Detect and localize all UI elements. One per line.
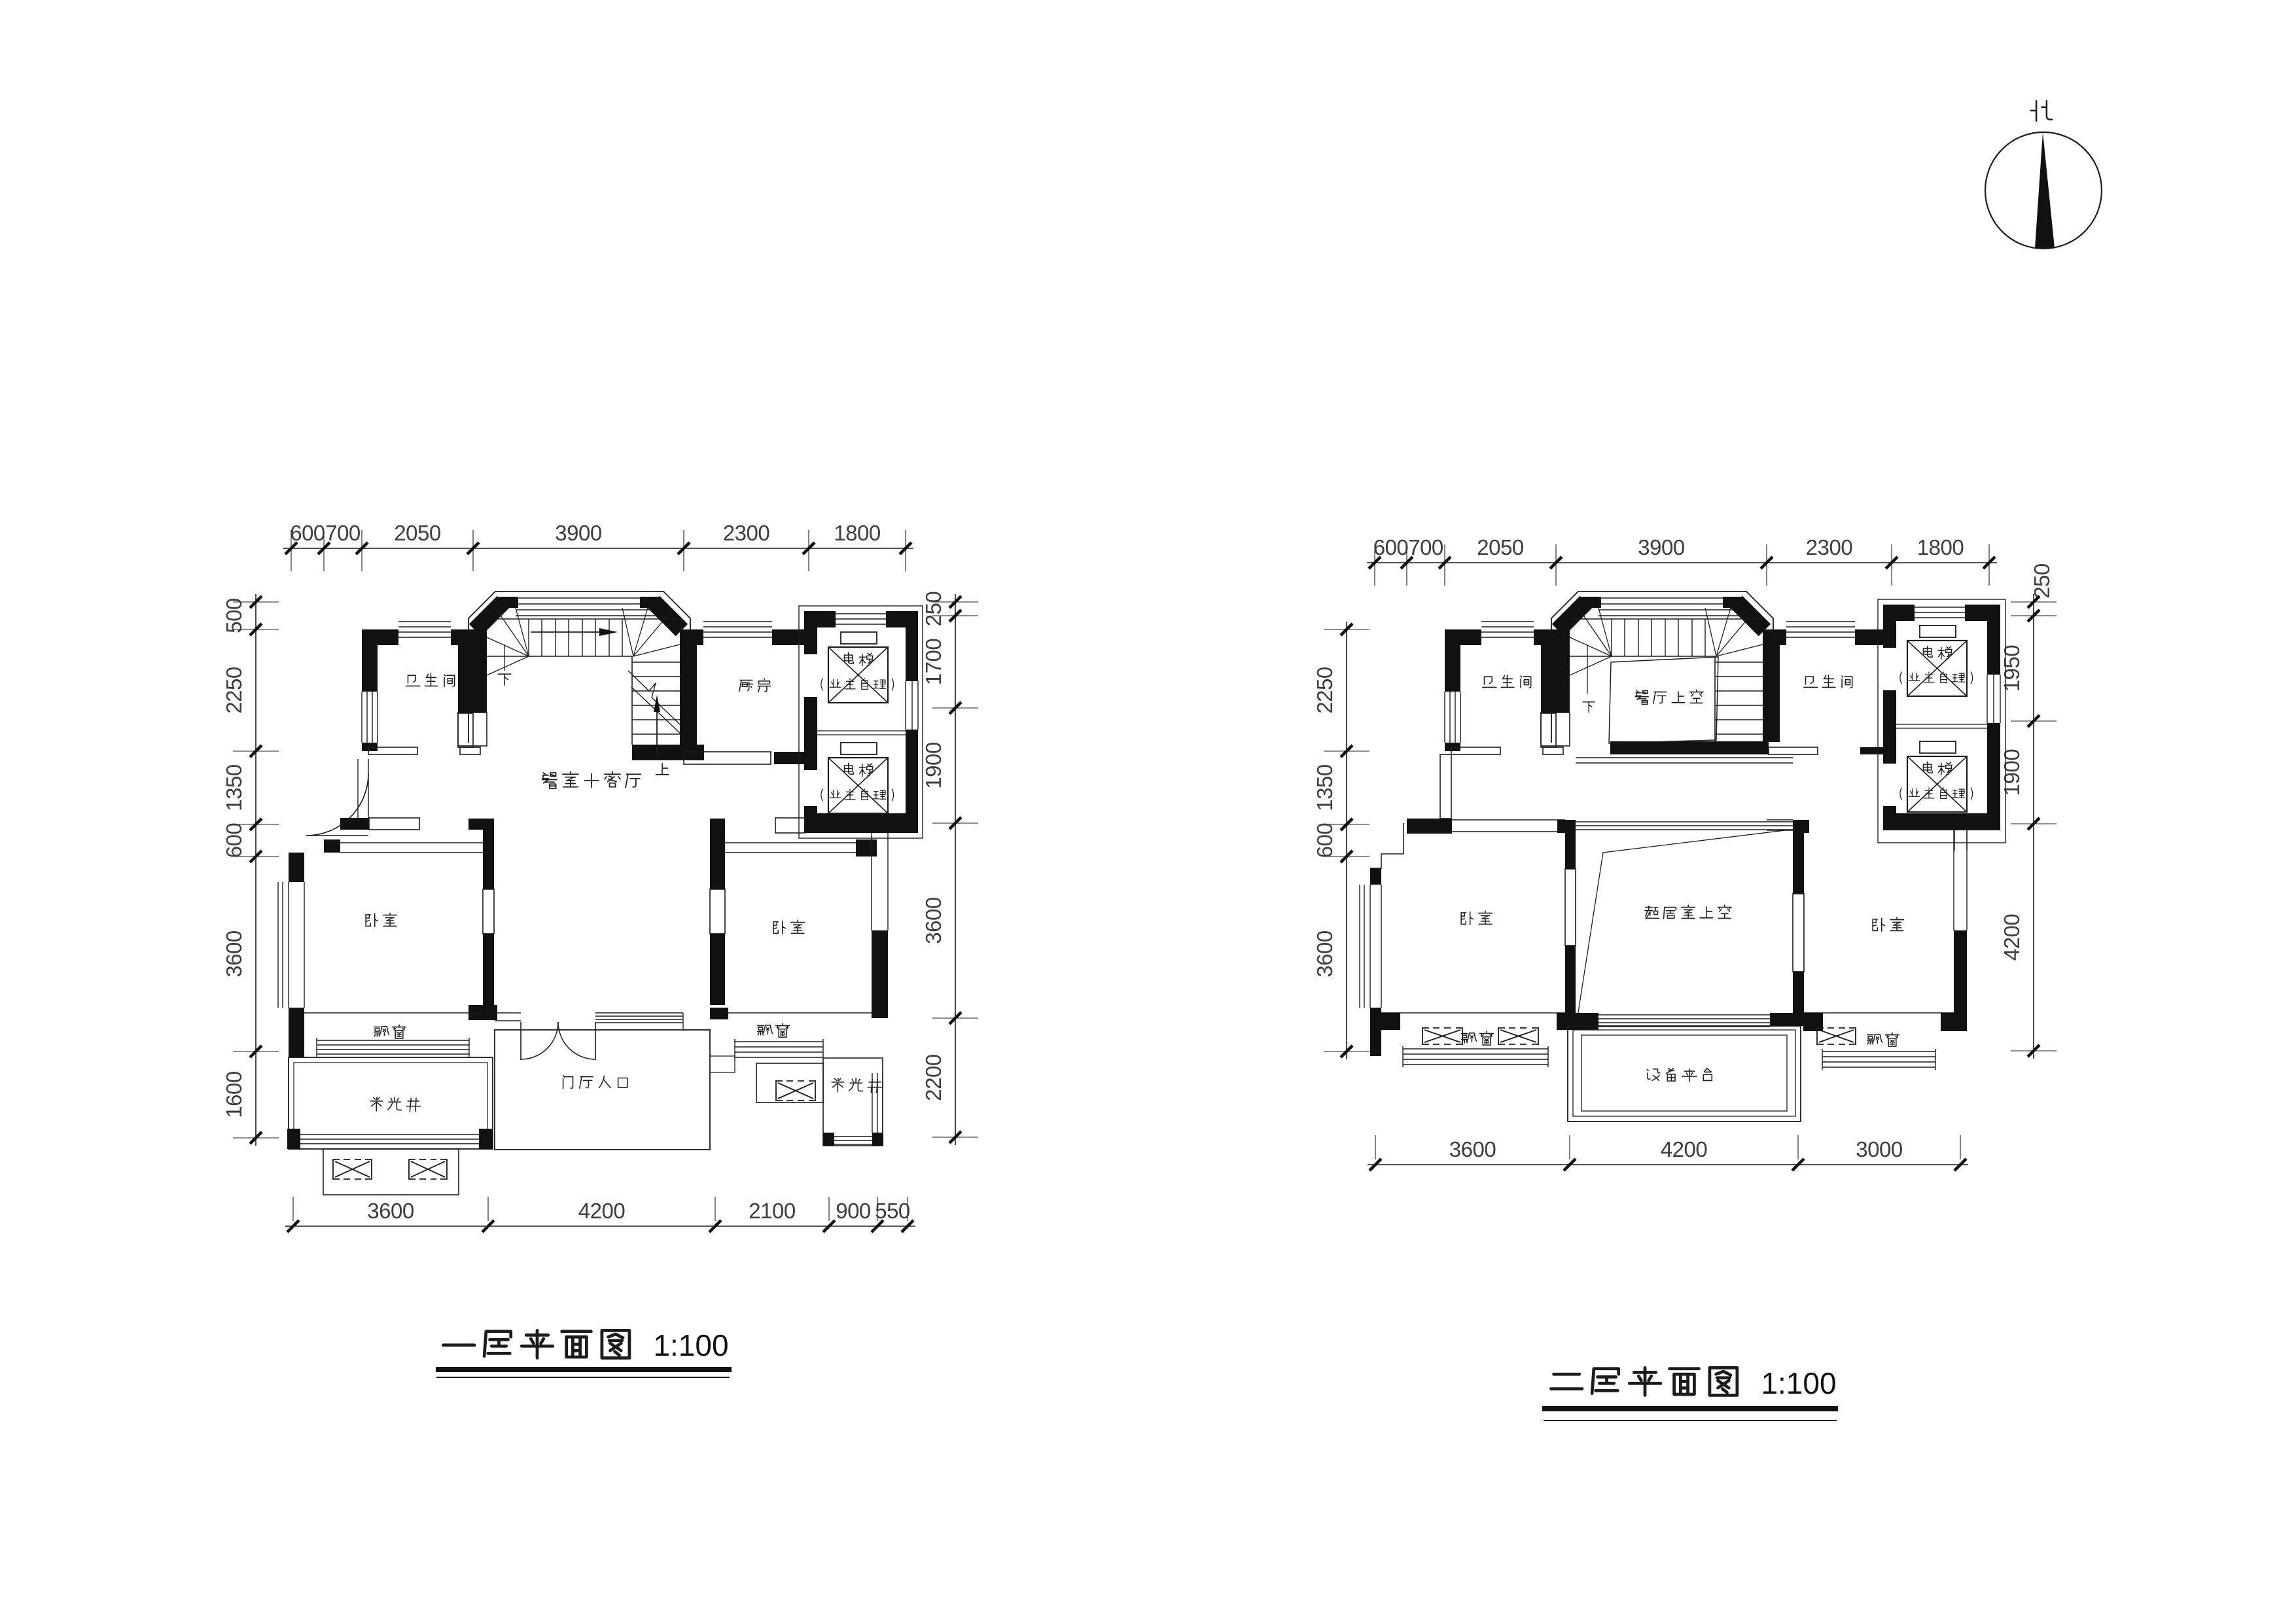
svg-text:1950: 1950	[2000, 645, 2024, 692]
svg-text:3900: 3900	[555, 521, 602, 545]
svg-text:1:100: 1:100	[653, 1328, 728, 1362]
svg-text:2050: 2050	[1477, 535, 1524, 559]
svg-text:1800: 1800	[834, 521, 881, 545]
svg-text:3600: 3600	[222, 930, 246, 978]
svg-text:4200: 4200	[578, 1199, 626, 1223]
svg-text:700: 700	[1408, 535, 1443, 559]
svg-text:3600: 3600	[367, 1199, 414, 1223]
svg-text:1:100: 1:100	[1761, 1366, 1836, 1400]
svg-text:600: 600	[222, 823, 246, 858]
svg-text:4200: 4200	[1661, 1137, 1708, 1161]
svg-text:600: 600	[1313, 823, 1337, 858]
svg-text:2250: 2250	[222, 667, 246, 714]
svg-text:600: 600	[290, 521, 325, 545]
svg-text:500: 500	[222, 598, 246, 633]
svg-text:1800: 1800	[1917, 535, 1964, 559]
svg-text:3600: 3600	[921, 897, 945, 944]
svg-text:4200: 4200	[2000, 914, 2024, 961]
svg-text:1900: 1900	[2000, 749, 2024, 796]
svg-text:600: 600	[1373, 535, 1409, 559]
svg-text:2050: 2050	[394, 521, 441, 545]
svg-text:900: 900	[836, 1199, 871, 1223]
svg-text:250: 250	[2030, 563, 2054, 599]
svg-text:700: 700	[325, 521, 361, 545]
svg-text:3000: 3000	[1856, 1137, 1903, 1161]
svg-text:1350: 1350	[1313, 764, 1337, 811]
svg-text:250: 250	[921, 591, 945, 627]
svg-text:2300: 2300	[1806, 535, 1853, 559]
svg-text:3600: 3600	[1449, 1137, 1496, 1161]
svg-text:1350: 1350	[222, 764, 246, 811]
svg-text:2100: 2100	[749, 1199, 796, 1223]
svg-text:3900: 3900	[1638, 535, 1685, 559]
svg-text:2300: 2300	[723, 521, 770, 545]
svg-text:550: 550	[875, 1199, 910, 1223]
svg-text:1700: 1700	[921, 639, 945, 686]
svg-text:3600: 3600	[1313, 930, 1337, 978]
svg-text:1900: 1900	[921, 742, 945, 789]
svg-text:2200: 2200	[921, 1054, 945, 1101]
svg-text:2250: 2250	[1313, 667, 1337, 714]
svg-text:1600: 1600	[222, 1071, 246, 1118]
